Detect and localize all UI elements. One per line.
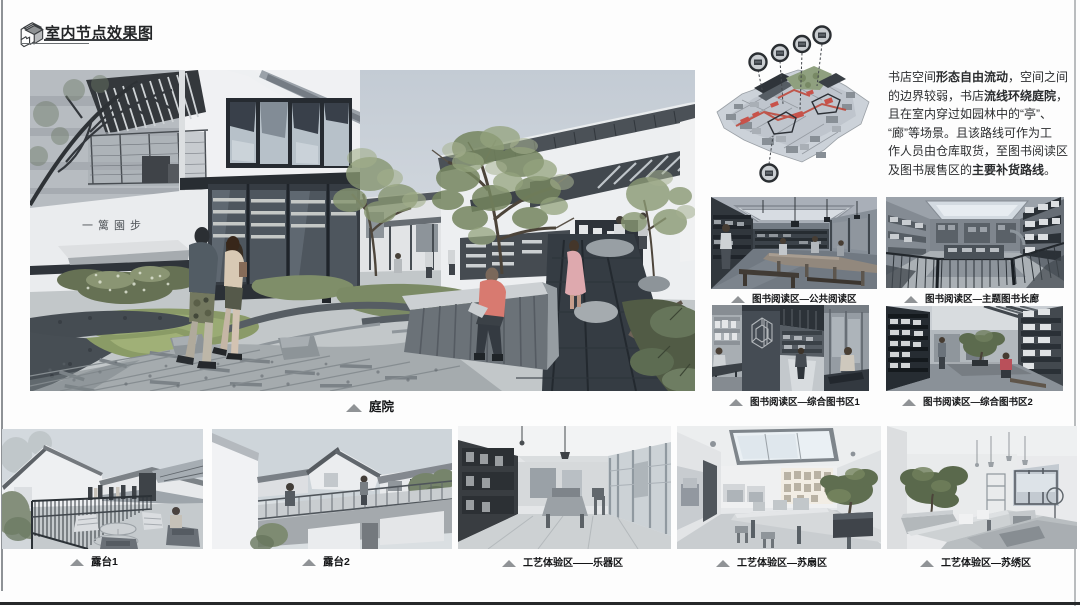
- svg-text:一篱園步: 一篱園步: [82, 218, 146, 232]
